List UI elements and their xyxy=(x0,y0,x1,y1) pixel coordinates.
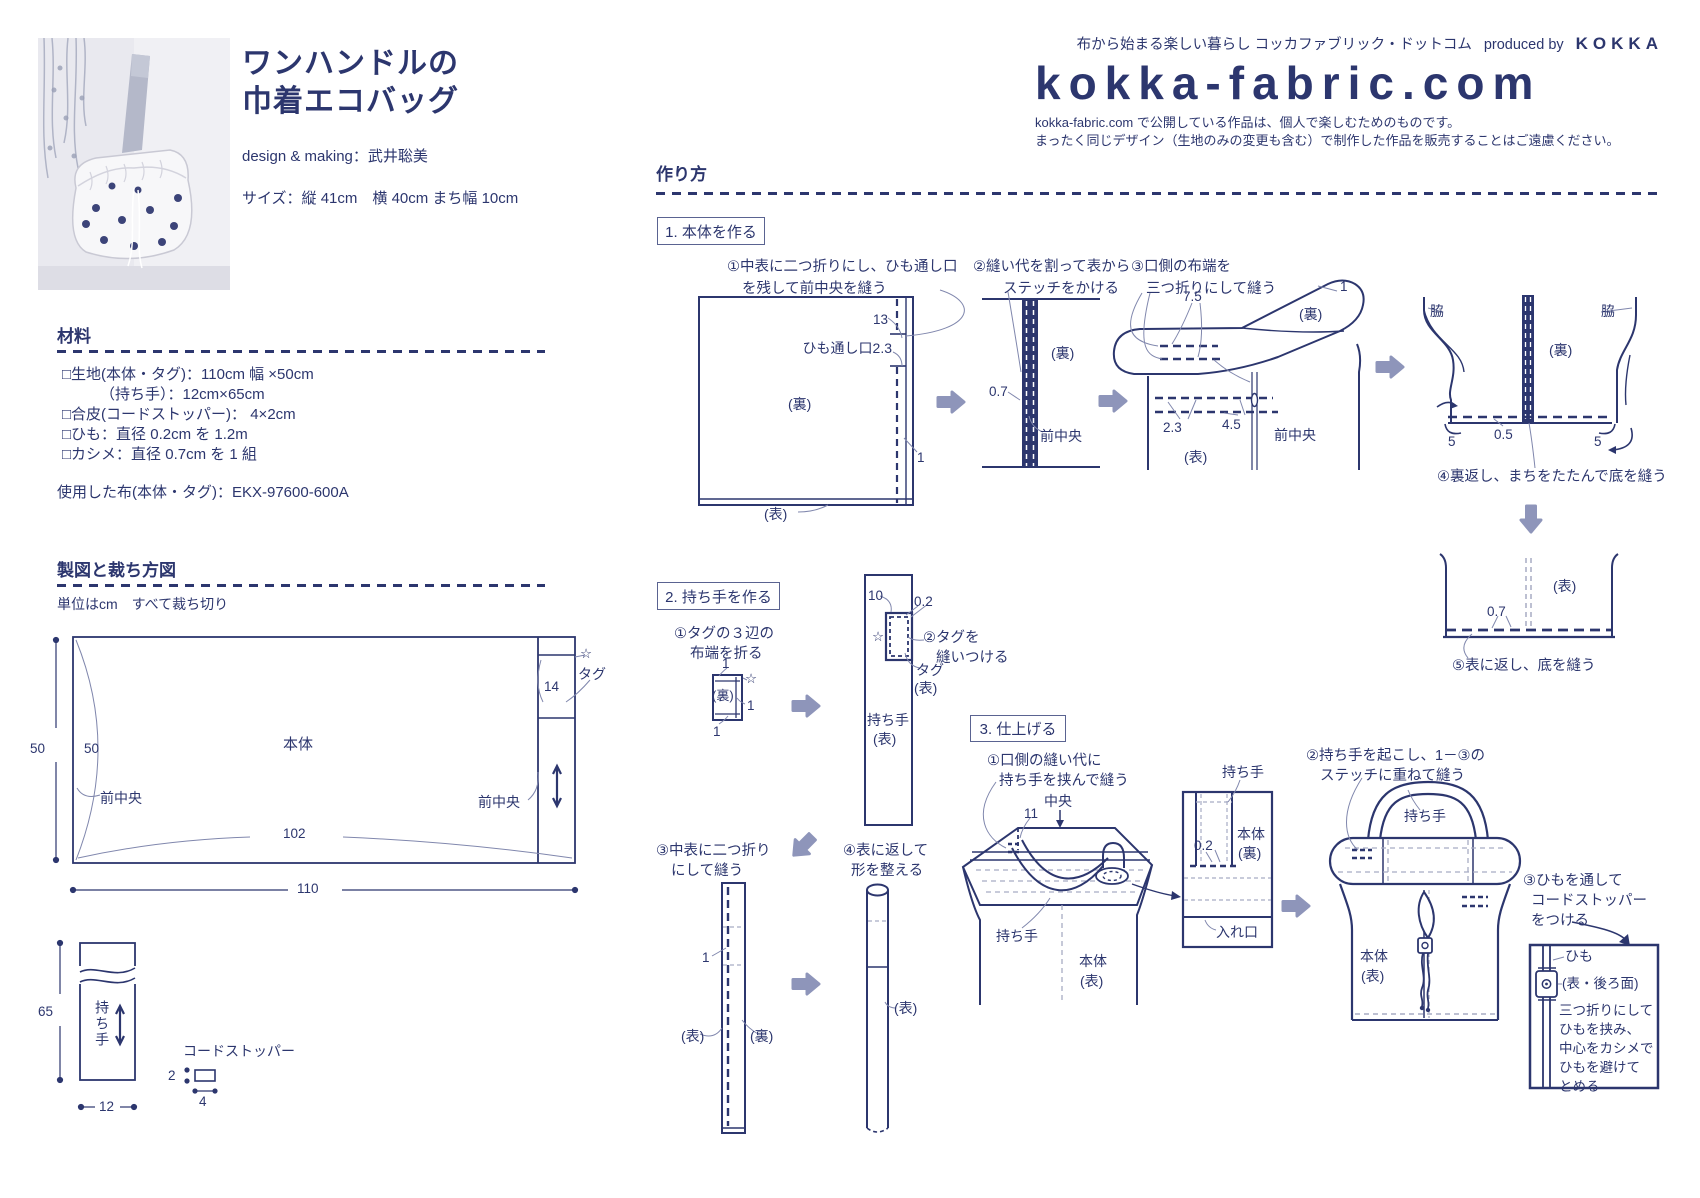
d4-wrong-side: (裏) xyxy=(1549,342,1572,358)
s2d2-star: ☆ xyxy=(872,629,884,645)
step-1-1-line1: ①中表に二つ折りにし、ひも通し口 xyxy=(727,259,958,276)
s3det1-body: 本体 xyxy=(1237,826,1265,842)
d4-side-right: 脇 xyxy=(1601,303,1615,319)
d5-dim-07: 0.7 xyxy=(1487,604,1506,620)
d1-wrong-side: (裏) xyxy=(788,396,811,412)
d5-right-side: (表) xyxy=(1553,578,1576,594)
step-1-3-line2: 三つ折りにして縫う xyxy=(1146,281,1276,298)
s2d2-handle: 持ち手 xyxy=(867,712,909,728)
d4-side-left: 脇 xyxy=(1430,303,1444,319)
step-2-1-line1: ①タグの３辺の xyxy=(674,626,774,643)
s2d3-dim-1: 1 xyxy=(702,950,710,966)
dim-65: 65 xyxy=(38,1004,53,1020)
s2d1-dim-1b: 1 xyxy=(713,724,721,740)
dim-12: 12 xyxy=(99,1099,114,1115)
piece-cord-stopper: コードストッパー xyxy=(183,1043,295,1059)
s3det3-text5: とめる xyxy=(1559,1079,1600,1095)
step-1-2-line1: ②縫い代を割って表から xyxy=(973,259,1130,276)
step-3-2-line2: ステッチに重ねて縫う xyxy=(1320,768,1465,785)
dim-4: 4 xyxy=(199,1094,207,1110)
d1-dim-13: 13 xyxy=(866,312,888,328)
s3det3-cord: ひも xyxy=(1565,948,1593,964)
s3d1-handle: 持ち手 xyxy=(996,928,1038,944)
diagram-linework xyxy=(0,0,1700,1198)
step-3-1-line2: 持ち手を挟んで縫う xyxy=(999,773,1129,790)
step-2-3-line1: ③中表に二つ折り xyxy=(656,843,771,860)
dim-14: 14 xyxy=(544,679,559,695)
d3-right-side: (表) xyxy=(1184,449,1207,465)
step-1-4: ④裏返し、まちをたたんで底を縫う xyxy=(1437,469,1667,486)
s3-d1 xyxy=(963,810,1181,1005)
d1-dim-1: 1 xyxy=(917,450,925,466)
d1-cord-opening: ひも通し口2.3 xyxy=(770,340,892,356)
s2d2-tag: タグ xyxy=(916,662,944,678)
step-3-3-line3: をつける xyxy=(1531,913,1589,930)
d3-dim-1: 1 xyxy=(1340,279,1348,295)
d2-front-center: 前中央 xyxy=(1040,428,1082,444)
s2d2-handle-side: (表) xyxy=(873,731,896,747)
s3det3-text4: ひもを避けて xyxy=(1559,1060,1640,1076)
s3d1-center: 中央 xyxy=(1044,793,1072,809)
step-3-1-line1: ①口側の縫い代に xyxy=(987,753,1102,770)
piece-body: 本体 xyxy=(283,736,313,753)
step-2-2-line1: ②タグを xyxy=(923,630,980,647)
dim-2: 2 xyxy=(168,1068,176,1084)
d4-dim-05: 0.5 xyxy=(1494,427,1513,443)
s2d1-wrong-side: (裏) xyxy=(712,689,734,704)
s1-d3 xyxy=(1114,281,1364,471)
s3det1-handle: 持ち手 xyxy=(1222,764,1264,780)
s3det1-body-side: (裏) xyxy=(1238,845,1261,861)
s3d2-body: 本体 xyxy=(1360,948,1388,964)
s3det3-text1: 三つ折りにして xyxy=(1559,1003,1653,1019)
s2-d2 xyxy=(865,575,912,825)
d1-right-side: (表) xyxy=(764,506,787,522)
cutting-leaders xyxy=(76,640,590,860)
step-1-2-line2: ステッチをかける xyxy=(1003,281,1119,298)
s3d2-body-side: (表) xyxy=(1361,968,1384,984)
step-1-3-line1: ③口側の布端を xyxy=(1131,259,1231,276)
dim-110: 110 xyxy=(297,881,319,897)
d3-front-center: 前中央 xyxy=(1274,427,1316,443)
step-3-3-line2: コードストッパー xyxy=(1531,893,1647,910)
dim-50-inner: 50 xyxy=(84,741,99,757)
s3d1-body-side: (表) xyxy=(1080,973,1103,989)
s2d1-dim-1r: 1 xyxy=(747,698,755,714)
piece-handle: 持ち手 xyxy=(94,1000,110,1048)
s3det3-text2: ひもを挟み、 xyxy=(1559,1022,1640,1038)
d2-wrong-side: (裏) xyxy=(1051,345,1074,361)
s3d1-dim-11: 11 xyxy=(1024,806,1038,822)
piece-tag: タグ xyxy=(578,666,606,682)
step-1-1-line2: を残して前中央を縫う xyxy=(742,281,887,298)
s2-d3 xyxy=(722,883,745,1133)
s2d1-star: ☆ xyxy=(745,671,757,687)
s3d2-handle: 持ち手 xyxy=(1404,808,1446,824)
d3-dim-45: 4.5 xyxy=(1222,417,1241,433)
pattern-sheet: ワンハンドルの 巾着エコバッグ design & making：武井聡美 サイズ… xyxy=(0,0,1700,1198)
dim-102: 102 xyxy=(283,826,306,842)
s3det3-text3: 中心をカシメで xyxy=(1559,1041,1654,1057)
s2d2-dim-02: 0.2 xyxy=(914,594,933,610)
s2d3-right-side: (表) xyxy=(681,1028,704,1044)
dim-50-outer: 50 xyxy=(30,741,45,757)
step-1-5: ⑤表に返し、底を縫う xyxy=(1452,658,1596,675)
cutting-diagram xyxy=(54,637,578,1110)
s3det1-dim-02: 0.2 xyxy=(1194,838,1213,854)
step-2-3-line2: にして縫う xyxy=(671,863,743,880)
d2-dim-07: 0.7 xyxy=(989,384,1008,400)
d4-dim-5r: 5 xyxy=(1594,434,1602,450)
step-3-3-line1: ③ひもを通して xyxy=(1523,873,1623,890)
d3-dim-75: 7.5 xyxy=(1183,289,1202,305)
s3d1-body: 本体 xyxy=(1079,953,1107,969)
step-2-4-line2: 形を整える xyxy=(851,863,923,880)
s3det3-side: (表・後ろ面) xyxy=(1562,976,1639,992)
s2d2-dim-10: 10 xyxy=(868,588,883,604)
step-2-2-line2: 縫いつける xyxy=(936,650,1009,667)
s2d1-dim-1t: 1 xyxy=(722,656,730,672)
s2d3-wrong-side: (裏) xyxy=(750,1028,773,1044)
d4-dim-5l: 5 xyxy=(1448,434,1456,450)
s2d4-right-side: (表) xyxy=(894,1000,917,1016)
front-center-left: 前中央 xyxy=(100,790,142,806)
d3-dim-23: 2.3 xyxy=(1163,420,1182,436)
step-3-2-line1: ②持ち手を起こし、1－③の xyxy=(1306,748,1485,765)
s2d2-tag-side: (表) xyxy=(914,680,937,696)
s2-d4 xyxy=(867,885,888,1133)
s1-d5 xyxy=(1440,554,1618,637)
d3-wrong-side: (裏) xyxy=(1299,306,1322,322)
step-2-4-line1: ④表に返して xyxy=(843,843,928,860)
s3det1-opening: 入れ口 xyxy=(1216,924,1258,940)
star-mark: ☆ xyxy=(580,646,592,662)
front-center-right: 前中央 xyxy=(478,794,520,810)
